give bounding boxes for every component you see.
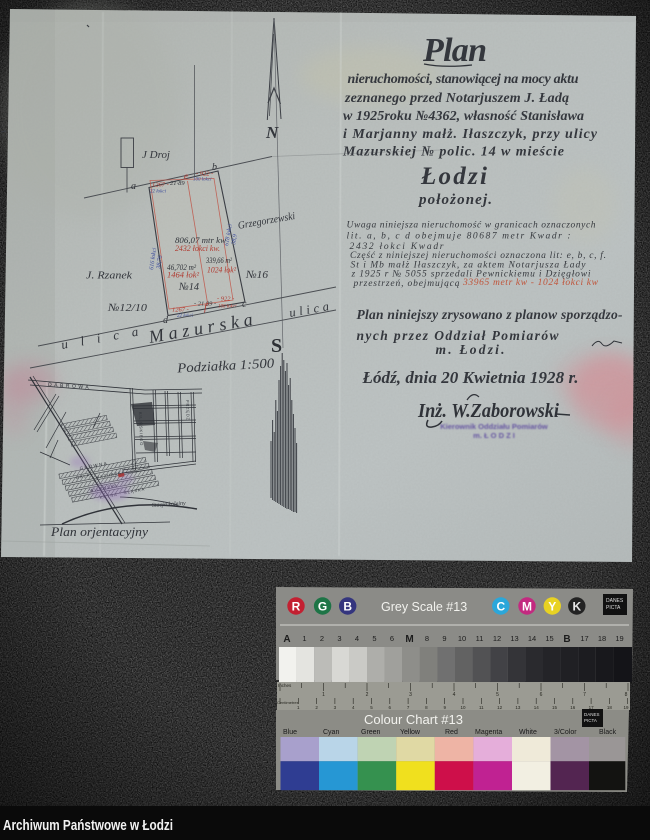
svg-text:4: 4 <box>453 692 456 698</box>
svg-text:DANES: DANES <box>584 712 600 717</box>
svg-text:Archiwum Państwowe w Łodzi: Archiwum Państwowe w Łodzi <box>3 817 173 834</box>
svg-text:A: A <box>283 634 290 645</box>
svg-text:Centimetres: Centimetres <box>277 700 299 705</box>
svg-text:33965 metr kw - 1024 łokci kw: 33965 metr kw - 1024 łokci kw <box>462 278 599 288</box>
svg-text:16: 16 <box>570 705 576 710</box>
svg-text:13: 13 <box>510 634 518 643</box>
svg-text:15: 15 <box>552 705 558 710</box>
svg-text:b: b <box>212 162 217 173</box>
svg-text:№12/10: №12/10 <box>107 302 148 314</box>
svg-text:10: 10 <box>458 634 466 643</box>
svg-text:zeznanego przed Notarjuszem J.: zeznanego przed Notarjuszem J. Ładą <box>344 91 569 106</box>
svg-text:9: 9 <box>442 634 446 643</box>
svg-text:Uwaga niniejsza nieruchomość w: Uwaga niniejsza nieruchomość w granicach… <box>347 221 596 231</box>
svg-text:1464 łok²: 1464 łok² <box>167 271 200 280</box>
svg-text:1267 -: 1267 - <box>172 307 189 314</box>
svg-text:8: 8 <box>425 634 429 643</box>
svg-text:12: 12 <box>493 634 501 643</box>
svg-text:K: K <box>572 600 581 614</box>
svg-text:Część z niniejszej nieruchomoś: Część z niniejszej nieruchomości oznaczo… <box>350 250 606 261</box>
svg-text:Green: Green <box>361 729 381 736</box>
svg-text:White: White <box>519 729 537 736</box>
svg-text:339,66 m²: 339,66 m² <box>205 256 232 265</box>
svg-text:M: M <box>405 634 413 645</box>
svg-text:1024 łok²: 1024 łok² <box>207 266 237 275</box>
svg-text:6: 6 <box>390 634 394 643</box>
svg-text:nieruchomości, stanowiącej na: nieruchomości, stanowiącej na mocy aktu <box>348 72 579 87</box>
svg-text:J Droj: J Droj <box>142 149 170 161</box>
svg-text:1267 -: 1267 - <box>152 182 169 189</box>
svg-text:a: a <box>131 181 136 192</box>
svg-text:17: 17 <box>580 634 588 643</box>
svg-text:N: N <box>265 123 279 142</box>
svg-text:Black: Black <box>599 729 617 736</box>
svg-text:w 1925roku №4362, własność St: w 1925roku №4362, własność Stanisława <box>343 109 584 124</box>
svg-text:100 łokci: 100 łokci <box>193 178 212 183</box>
svg-text:2: 2 <box>320 634 324 643</box>
svg-text:Plan: Plan <box>422 32 487 69</box>
svg-text:Plan niniejszy zrysowano z pla: Plan niniejszy zrysowano z planow sporzą… <box>357 307 624 322</box>
svg-text:PICTA: PICTA <box>584 718 597 723</box>
svg-text:19: 19 <box>623 705 629 710</box>
svg-text:18: 18 <box>598 634 606 643</box>
svg-text:7: 7 <box>583 692 586 698</box>
svg-text:Cyan: Cyan <box>323 729 339 736</box>
svg-text:8: 8 <box>625 692 628 698</box>
svg-text:J. Rzanek: J. Rzanek <box>86 270 133 282</box>
svg-text:3: 3 <box>409 692 412 698</box>
svg-text:Colour Chart #13: Colour Chart #13 <box>364 712 463 727</box>
svg-text:14: 14 <box>534 705 540 710</box>
svg-text:1: 1 <box>322 692 325 698</box>
svg-text:Inż. W.Zaborowski: Inż. W.Zaborowski <box>417 400 559 422</box>
svg-text:Grey Scale #13: Grey Scale #13 <box>381 600 467 614</box>
svg-text:14: 14 <box>528 634 536 643</box>
svg-text:przestrzeń, obejmującą: przestrzeń, obejmującą <box>353 279 460 289</box>
svg-text:3/Color: 3/Color <box>554 729 577 736</box>
svg-text:Kierownik Oddziału Pomiarów: Kierownik Oddziału Pomiarów <box>440 422 548 431</box>
svg-text:13: 13 <box>515 705 521 710</box>
svg-text:Łodzi: Łodzi <box>420 163 487 190</box>
svg-text:DANES: DANES <box>606 598 624 604</box>
svg-text:№14: №14 <box>178 281 199 293</box>
svg-text:Plan orjentacyjny: Plan orjentacyjny <box>50 524 148 539</box>
svg-text:B: B <box>563 634 570 645</box>
svg-text:1: 1 <box>302 634 306 643</box>
svg-text:22 łokci: 22 łokci <box>150 190 167 195</box>
svg-text:11: 11 <box>479 705 484 710</box>
svg-text:15: 15 <box>545 634 553 643</box>
svg-text:S: S <box>271 335 282 357</box>
svg-text:PRZĘDZ: PRZĘDZ <box>185 400 191 421</box>
svg-text:Inches: Inches <box>278 683 292 688</box>
svg-text:Yellow: Yellow <box>400 729 421 736</box>
svg-text:Mazurskiej № polic. 14 w mieśc: Mazurskiej № polic. 14 w mieście <box>342 145 564 160</box>
svg-text:10: 10 <box>460 705 466 710</box>
svg-text:4: 4 <box>355 634 359 643</box>
svg-text:№16: №16 <box>245 269 269 281</box>
svg-text:2: 2 <box>366 692 369 698</box>
svg-text:- 922 -: - 922 - <box>196 171 213 178</box>
svg-text:Red: Red <box>445 729 458 736</box>
svg-text:R: R <box>292 600 301 614</box>
svg-text:Łódź, dnia 20 Kwietnia 1928: Łódź, dnia 20 Kwietnia 1928 r. <box>362 368 579 387</box>
svg-text:5: 5 <box>496 692 499 698</box>
svg-text:11: 11 <box>476 634 484 643</box>
svg-text:19: 19 <box>615 634 623 643</box>
svg-text:PICTA: PICTA <box>606 605 621 611</box>
svg-text:6: 6 <box>540 692 543 698</box>
svg-text:12: 12 <box>497 705 503 710</box>
svg-text:C: C <box>496 600 505 614</box>
svg-text:21·89: 21·89 <box>170 180 185 187</box>
svg-text:i Marjanny małż. Iłaszczyk, pr: i Marjanny małż. Iłaszczyk, przy ulicy <box>343 127 598 142</box>
svg-text:M: M <box>522 600 532 614</box>
svg-text:położonej.: położonej. <box>417 192 492 208</box>
svg-text:5: 5 <box>372 634 376 643</box>
svg-text:18: 18 <box>607 705 613 710</box>
svg-text:e: e <box>184 171 188 181</box>
svg-text:Blue: Blue <box>283 729 297 736</box>
svg-text:B: B <box>343 600 352 614</box>
svg-text:G: G <box>318 600 327 614</box>
svg-text:Magenta: Magenta <box>475 729 502 736</box>
svg-text:Y: Y <box>548 600 556 614</box>
svg-text:2432 łokci kw.: 2432 łokci kw. <box>175 243 220 253</box>
svg-text:nych przez Oddział Pomiarów: nych przez Oddział Pomiarów <box>357 328 560 343</box>
svg-text:m. Ł O D Z I: m. Ł O D Z I <box>473 431 515 440</box>
svg-text:- 922 -: - 922 - <box>217 296 234 303</box>
svg-text:3: 3 <box>337 634 341 643</box>
